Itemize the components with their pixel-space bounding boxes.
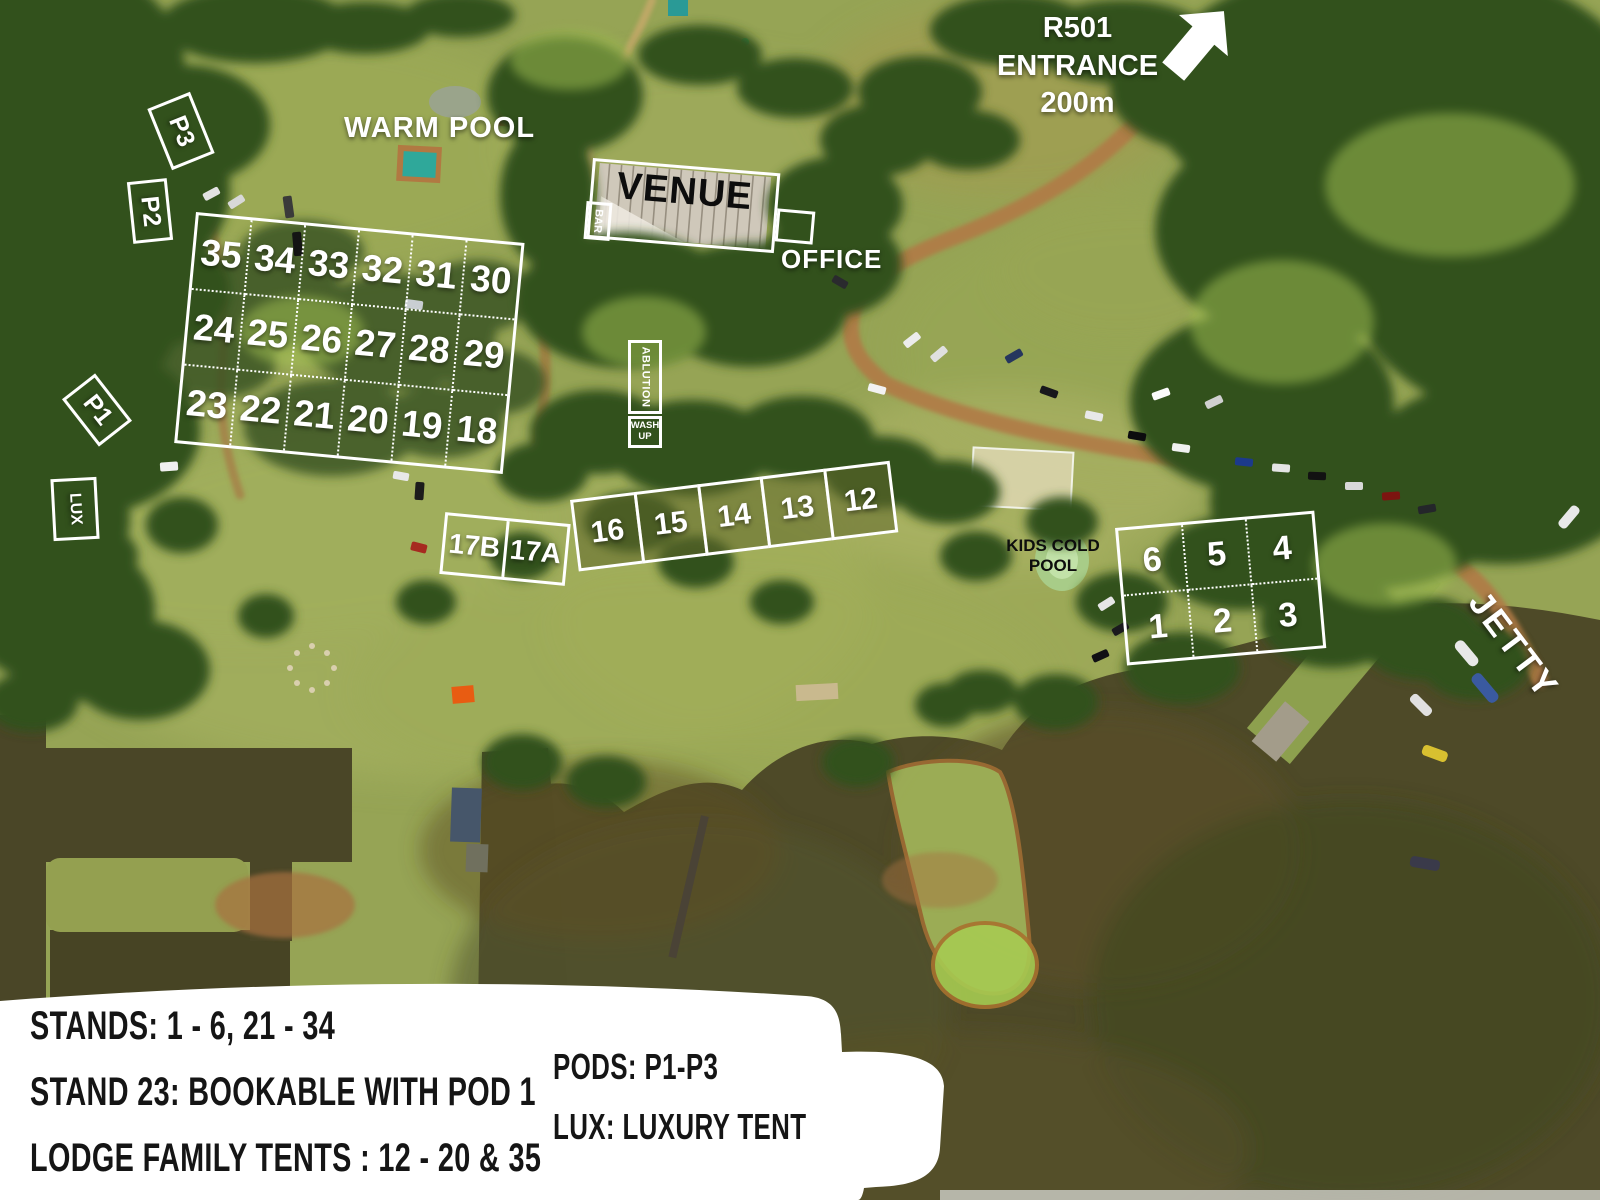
office-label: OFFICE	[781, 244, 882, 275]
stand-27: 27	[346, 306, 407, 386]
entrance-label: R501 ENTRANCE 200m	[985, 10, 1170, 123]
stand-18: 18	[446, 391, 507, 471]
ablution-box: ABLUTION	[628, 340, 662, 414]
stand-21: 21	[285, 375, 346, 455]
stand-24: 24	[185, 290, 246, 370]
wash-up-box: WASH UP	[628, 416, 662, 448]
kids-cold-pool-label: KIDS COLD POOL	[995, 536, 1111, 575]
venue-label: VENUE	[615, 165, 754, 219]
ablution-label: ABLUTION	[639, 347, 651, 408]
lux-box: LUX	[50, 477, 99, 541]
stand-3: 3	[1253, 580, 1323, 651]
stand-29: 29	[453, 316, 514, 396]
venue-box: VENUE	[586, 158, 780, 253]
stand-31: 31	[407, 236, 468, 316]
legend-lux: LUX: LUXURY TENT	[553, 1106, 905, 1148]
entrance-road: R501	[985, 10, 1170, 48]
stand-33: 33	[299, 225, 360, 305]
stand-19: 19	[392, 386, 453, 466]
legend-pods: PODS: P1-P3	[553, 1046, 783, 1088]
stand-grid-waterfront: 6 5 4 1 2 3	[1115, 511, 1326, 666]
campsite-map: R501 ENTRANCE 200m WARM POOL VENUE BAR O…	[0, 0, 1600, 1200]
stand-5: 5	[1183, 519, 1253, 590]
stand-23: 23	[177, 365, 238, 445]
tent-12: 12	[823, 461, 898, 541]
wash-up-label-line2: UP	[638, 432, 651, 443]
stand-grid-main: 35 34 33 32 31 30 24 25 26 27 28 29 23 2…	[174, 212, 524, 474]
office-box	[775, 208, 816, 244]
orange-tent	[451, 685, 474, 704]
stand-32: 32	[353, 231, 414, 311]
stand-35: 35	[192, 215, 253, 295]
entrance-arrow-icon	[1156, 0, 1240, 84]
stand-26: 26	[292, 300, 353, 380]
stand-28: 28	[400, 311, 461, 391]
stand-34: 34	[245, 220, 306, 300]
stand-17-box: 17B 17A	[439, 512, 570, 586]
pod-p2-box: P2	[127, 178, 173, 244]
stand-30: 30	[460, 241, 521, 321]
stand-17b: 17B	[443, 515, 507, 576]
stand-20: 20	[339, 381, 400, 461]
stand-4: 4	[1247, 514, 1317, 585]
warm-pool-label: WARM POOL	[344, 112, 535, 145]
entrance-distance: 200m	[985, 85, 1170, 123]
warm-pool-structure	[396, 145, 442, 183]
bar-label: BAR	[591, 209, 605, 234]
entrance-text: ENTRANCE	[985, 48, 1170, 86]
stand-17a: 17A	[501, 521, 568, 583]
stand-22: 22	[231, 370, 292, 450]
stand-2: 2	[1188, 585, 1258, 656]
stand-1: 1	[1124, 591, 1194, 662]
stand-25: 25	[238, 295, 299, 375]
bar-box: BAR	[583, 201, 612, 241]
stand-6: 6	[1118, 525, 1188, 596]
legend-stands: STANDS: 1 - 6, 21 - 34	[30, 1004, 454, 1049]
